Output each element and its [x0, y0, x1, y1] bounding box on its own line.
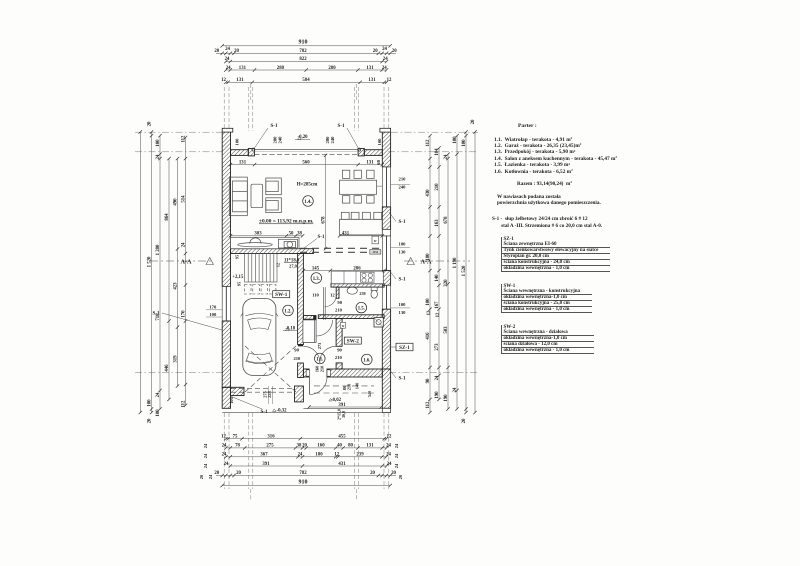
svg-text:431: 431	[338, 462, 346, 467]
svg-text:430: 430	[426, 189, 431, 197]
svg-text:280: 280	[277, 66, 285, 71]
svg-text:431: 431	[342, 232, 350, 237]
svg-text:-0,32: -0,32	[277, 409, 288, 414]
svg-text:24: 24	[225, 57, 230, 62]
svg-text:316: 316	[267, 435, 275, 440]
svg-text:514: 514	[181, 195, 186, 203]
svg-text:782: 782	[299, 49, 307, 54]
svg-text:910: 910	[299, 480, 308, 486]
svg-text:12: 12	[334, 453, 339, 458]
svg-text:210: 210	[435, 183, 440, 191]
svg-text:S-1: S-1	[261, 410, 268, 415]
svg-text:20: 20	[147, 418, 152, 423]
svg-text:782: 782	[299, 471, 307, 476]
svg-text:391: 391	[262, 462, 270, 467]
svg-text:170: 170	[209, 305, 217, 310]
svg-text:12: 12	[221, 78, 226, 83]
svg-text:24: 24	[225, 47, 230, 52]
svg-text:104: 104	[435, 148, 440, 156]
svg-text:50: 50	[289, 232, 294, 237]
svg-text:100: 100	[156, 409, 161, 417]
svg-text:w: w	[374, 238, 377, 243]
svg-text:163: 163	[435, 219, 440, 227]
svg-text:20: 20	[392, 49, 397, 54]
svg-text:131: 131	[236, 78, 244, 83]
svg-text:24: 24	[224, 462, 229, 467]
svg-text:12: 12	[387, 78, 392, 83]
svg-text:SW-1: SW-1	[275, 292, 288, 298]
svg-text:210: 210	[335, 307, 343, 312]
svg-text:131: 131	[368, 78, 376, 83]
svg-text:24: 24	[435, 375, 440, 380]
svg-text:38: 38	[297, 232, 302, 237]
svg-text:24: 24	[181, 242, 186, 247]
svg-text:24: 24	[222, 444, 227, 449]
svg-text:1 280: 1 280	[156, 244, 161, 255]
svg-text:24: 24	[444, 154, 449, 159]
svg-text:12: 12	[436, 312, 441, 317]
svg-text:20: 20	[471, 119, 476, 124]
svg-text:864: 864	[165, 213, 170, 221]
svg-text:490: 490	[173, 198, 178, 206]
svg-text:20: 20	[391, 471, 396, 476]
svg-text:90: 90	[426, 378, 431, 383]
svg-text:112: 112	[181, 400, 186, 408]
svg-text:140: 140	[435, 274, 440, 282]
svg-text:210: 210	[399, 176, 407, 181]
svg-text:1.6.: 1.6.	[363, 358, 370, 363]
svg-text:560: 560	[302, 160, 310, 165]
svg-text:A-A: A-A	[181, 259, 193, 266]
svg-text:273: 273	[317, 342, 322, 349]
svg-text:24: 24	[222, 453, 227, 458]
svg-text:+2,15: +2,15	[232, 275, 244, 280]
svg-text:20: 20	[370, 471, 375, 476]
svg-text:303: 303	[254, 232, 262, 237]
svg-text:190: 190	[444, 394, 449, 402]
svg-text:20: 20	[373, 49, 378, 54]
svg-text:20: 20	[236, 471, 241, 476]
svg-text:100: 100	[147, 399, 152, 407]
svg-text:280: 280	[328, 66, 336, 71]
svg-text:131: 131	[366, 160, 374, 165]
svg-text:24: 24	[382, 47, 387, 52]
svg-text:130: 130	[399, 249, 407, 254]
svg-text:24: 24	[156, 392, 161, 397]
svg-text:1 190: 1 190	[453, 257, 458, 268]
svg-text:±0.00 = 113,92 m.n.p.m.: ±0.00 = 113,92 m.n.p.m.	[259, 219, 314, 225]
svg-text:170: 170	[181, 310, 186, 318]
svg-text:100: 100	[453, 136, 458, 144]
svg-text:20: 20	[147, 121, 152, 126]
svg-text:27,0: 27,0	[289, 263, 297, 268]
svg-text:131: 131	[366, 66, 374, 71]
svg-text:20: 20	[214, 49, 219, 54]
svg-text:503: 503	[444, 326, 449, 334]
svg-text:100: 100	[462, 139, 467, 147]
svg-text:1.2.: 1.2.	[284, 309, 291, 314]
svg-text:180: 180	[399, 241, 407, 246]
svg-text:30,0: 30,0	[341, 411, 346, 418]
svg-text:140: 140	[354, 382, 359, 389]
svg-text:100: 100	[209, 312, 217, 317]
svg-text:S-1: S-1	[399, 377, 406, 382]
svg-text:100: 100	[156, 139, 161, 147]
svg-text:100: 100	[377, 138, 382, 146]
svg-text:210: 210	[319, 365, 324, 372]
svg-text:1 520: 1 520	[147, 256, 152, 267]
svg-text:1.5.: 1.5.	[358, 306, 365, 311]
svg-text:167: 167	[435, 301, 440, 309]
svg-text:210: 210	[335, 355, 343, 360]
svg-text:1.1.: 1.1.	[316, 357, 323, 362]
svg-text:24: 24	[387, 462, 392, 467]
svg-text:SW-2: SW-2	[347, 339, 360, 345]
svg-text:12: 12	[330, 292, 335, 297]
svg-text:100: 100	[235, 138, 240, 146]
svg-text:1.3.: 1.3.	[313, 277, 320, 282]
svg-text:416: 416	[426, 332, 431, 340]
svg-text:100: 100	[399, 302, 407, 307]
svg-text:90: 90	[337, 300, 342, 305]
svg-text:391: 391	[338, 403, 346, 408]
svg-text:240: 240	[399, 184, 407, 189]
svg-text:584: 584	[302, 78, 310, 83]
svg-text:S-1: S-1	[153, 312, 160, 317]
svg-text:240: 240	[278, 136, 283, 144]
svg-text:540: 540	[367, 391, 372, 397]
svg-text:12: 12	[276, 263, 281, 267]
svg-text:80: 80	[348, 444, 353, 449]
svg-text:24: 24	[453, 387, 458, 392]
svg-text:275: 275	[266, 444, 274, 449]
svg-text:24: 24	[298, 453, 303, 458]
svg-text:910: 910	[299, 40, 308, 46]
svg-text:240: 240	[330, 136, 335, 144]
svg-text:S-1: S-1	[338, 124, 345, 129]
svg-text:w: w	[342, 324, 345, 328]
svg-text:446: 446	[165, 364, 170, 372]
svg-text:455: 455	[338, 435, 346, 440]
svg-text:286: 286	[353, 266, 361, 271]
svg-text:12: 12	[427, 310, 432, 315]
svg-text:319: 319	[173, 355, 178, 363]
svg-text:24: 24	[386, 453, 391, 458]
svg-text:A-A: A-A	[421, 259, 433, 266]
svg-text:130: 130	[399, 310, 407, 315]
svg-text:160: 160	[317, 444, 325, 449]
svg-text:S-1: S-1	[399, 278, 406, 283]
svg-text:112: 112	[426, 401, 431, 409]
svg-text:822: 822	[299, 57, 307, 62]
svg-text:1151: 1151	[372, 250, 378, 254]
svg-text:24: 24	[226, 66, 231, 71]
svg-text:24: 24	[382, 66, 387, 71]
svg-text:SZ-1: SZ-1	[399, 345, 410, 351]
svg-text:112: 112	[181, 135, 186, 143]
svg-text:320: 320	[444, 279, 449, 287]
svg-text:20: 20	[234, 49, 239, 54]
svg-text:210: 210	[293, 356, 301, 361]
svg-text:145: 145	[312, 266, 320, 271]
svg-text:75: 75	[233, 435, 238, 440]
svg-text:367: 367	[260, 453, 268, 458]
svg-text:131: 131	[239, 160, 247, 165]
svg-text:239: 239	[359, 291, 365, 296]
svg-text:12: 12	[221, 435, 226, 440]
svg-text:90: 90	[294, 348, 299, 353]
svg-text:24: 24	[156, 154, 161, 159]
svg-text:24: 24	[383, 57, 388, 62]
svg-text:228: 228	[267, 390, 272, 397]
svg-text:20: 20	[302, 444, 307, 449]
svg-text:40: 40	[337, 444, 342, 449]
svg-text:S-1: S-1	[271, 124, 278, 129]
svg-text:S-1: S-1	[399, 220, 406, 225]
svg-text:60: 60	[376, 159, 381, 164]
svg-text:24: 24	[386, 444, 391, 449]
svg-text:678: 678	[444, 216, 449, 224]
svg-text:423: 423	[173, 282, 178, 290]
svg-text:20: 20	[214, 471, 219, 476]
svg-text:20: 20	[462, 418, 467, 423]
svg-text:1 520: 1 520	[462, 265, 467, 276]
svg-text:12: 12	[387, 435, 392, 440]
svg-text:131: 131	[239, 66, 247, 71]
svg-text:180: 180	[315, 453, 323, 458]
svg-text:131: 131	[366, 444, 374, 449]
svg-text:1.4.: 1.4.	[304, 200, 311, 205]
svg-text:190: 190	[435, 391, 440, 399]
svg-text:273: 273	[435, 343, 440, 351]
svg-text:112: 112	[426, 139, 431, 147]
svg-text:210: 210	[347, 383, 352, 390]
svg-text:239: 239	[356, 453, 364, 458]
svg-text:678: 678	[321, 216, 326, 224]
svg-text:90: 90	[337, 347, 342, 352]
svg-text:S-1: S-1	[318, 235, 325, 240]
svg-text:110: 110	[312, 292, 319, 297]
svg-text:H=285cm: H=285cm	[297, 183, 318, 188]
svg-text:100: 100	[426, 298, 431, 306]
svg-text:78: 78	[235, 444, 240, 449]
